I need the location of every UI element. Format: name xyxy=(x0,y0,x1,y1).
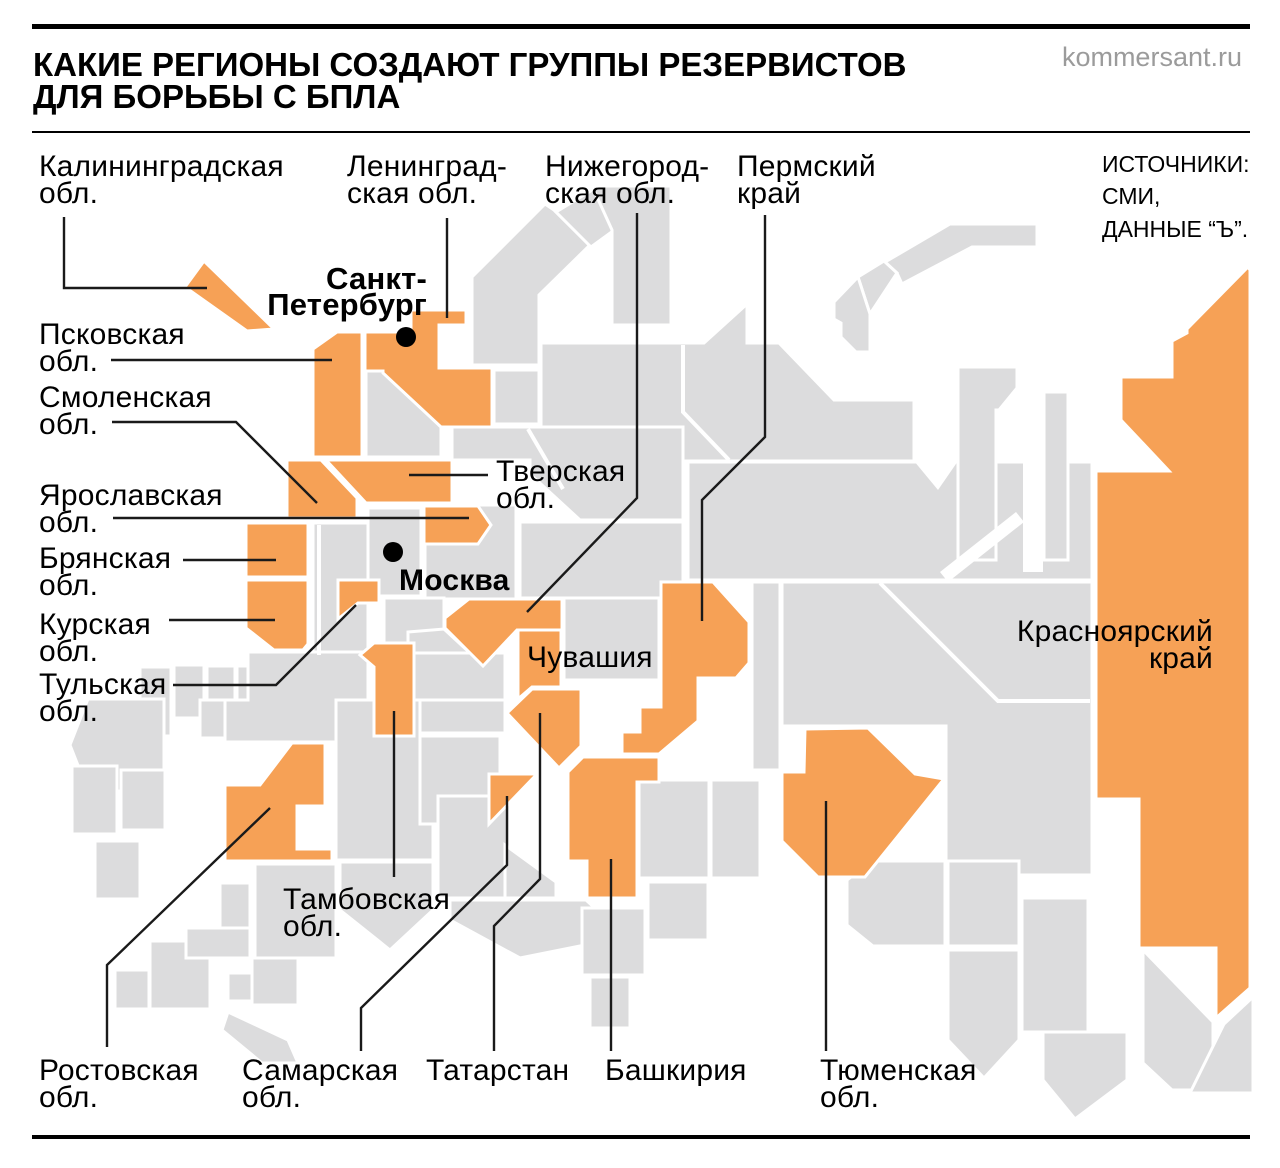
svg-text:обл.: обл. xyxy=(39,177,98,210)
svg-text:обл.: обл. xyxy=(39,635,98,668)
svg-text:ская обл.: ская обл. xyxy=(347,177,477,210)
svg-text:обл.: обл. xyxy=(242,1081,301,1114)
svg-text:обл.: обл. xyxy=(39,408,98,441)
svg-text:Москва: Москва xyxy=(399,564,510,597)
svg-text:ИСТОЧНИКИ:: ИСТОЧНИКИ: xyxy=(1102,151,1250,177)
svg-text:Татарстан: Татарстан xyxy=(426,1054,569,1087)
svg-text:обл.: обл. xyxy=(39,569,98,602)
svg-text:СМИ,: СМИ, xyxy=(1102,183,1160,209)
svg-text:Башкирия: Башкирия xyxy=(605,1054,747,1087)
svg-text:обл.: обл. xyxy=(39,1081,98,1114)
svg-text:обл.: обл. xyxy=(39,506,98,539)
svg-text:обл.: обл. xyxy=(496,482,555,515)
svg-text:обл.: обл. xyxy=(39,345,98,378)
svg-text:ДАННЫЕ “Ъ”.: ДАННЫЕ “Ъ”. xyxy=(1102,216,1248,242)
svg-text:обл.: обл. xyxy=(820,1081,879,1114)
svg-text:край: край xyxy=(1149,642,1213,675)
svg-text:Чувашия: Чувашия xyxy=(527,641,653,674)
svg-text:ДЛЯ БОРЬБЫ С БПЛА: ДЛЯ БОРЬБЫ С БПЛА xyxy=(33,78,400,115)
svg-text:ская обл.: ская обл. xyxy=(545,177,675,210)
svg-text:край: край xyxy=(737,177,801,210)
svg-text:обл.: обл. xyxy=(283,910,342,943)
svg-text:обл.: обл. xyxy=(39,695,98,728)
svg-text:Петербург: Петербург xyxy=(267,287,427,322)
svg-text:kommersant.ru: kommersant.ru xyxy=(1062,42,1242,72)
